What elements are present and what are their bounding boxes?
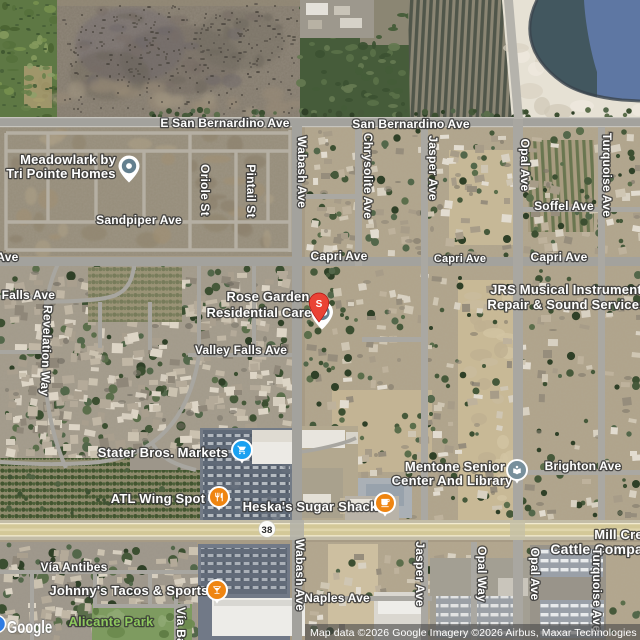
- svg-text:Meadowlark by: Meadowlark by: [20, 152, 116, 167]
- svg-text:Brighton Ave: Brighton Ave: [545, 459, 622, 473]
- svg-text:38: 38: [262, 525, 273, 536]
- svg-text:E San Bernardino Ave: E San Bernardino Ave: [160, 116, 289, 130]
- svg-text:Jasper Ave: Jasper Ave: [413, 541, 427, 606]
- svg-text:Mentone Senior: Mentone Senior: [405, 459, 505, 474]
- svg-text:Repair & Sound Services: Repair & Sound Services: [487, 297, 640, 312]
- svg-text:Johnny's Tacos & Sports: Johnny's Tacos & Sports: [49, 583, 208, 598]
- svg-text:Naples Ave: Naples Ave: [304, 591, 370, 605]
- svg-text:Turquoise Ave: Turquoise Ave: [590, 548, 604, 632]
- svg-text:Residential Care: Residential Care: [206, 305, 311, 320]
- svg-text:Google: Google: [7, 618, 52, 637]
- svg-text:Capri Ave: Capri Ave: [311, 249, 368, 263]
- svg-text:Alicante Park: Alicante Park: [69, 614, 155, 629]
- svg-text:Stater Bros. Markets: Stater Bros. Markets: [98, 445, 228, 460]
- svg-text:Capri Ave: Capri Ave: [531, 250, 588, 264]
- svg-text:Center And Library: Center And Library: [392, 473, 513, 488]
- svg-text:Mill Creek: Mill Creek: [594, 527, 640, 542]
- svg-text:Tri Pointe Homes: Tri Pointe Homes: [6, 166, 115, 181]
- svg-text:Map data ©2026 Google Imagery: Map data ©2026 Google Imagery ©2026 Airb…: [310, 627, 637, 639]
- svg-text:Vía Ba: Vía Ba: [174, 607, 188, 640]
- svg-text:Opal Ave: Opal Ave: [518, 139, 532, 192]
- svg-text:Soffel Ave: Soffel Ave: [534, 199, 594, 213]
- svg-text:San Bernardino Ave: San Bernardino Ave: [352, 117, 470, 131]
- svg-text:Turquoise Ave: Turquoise Ave: [600, 133, 614, 217]
- svg-text:ATL Wing Spot: ATL Wing Spot: [111, 491, 206, 506]
- svg-text:Wabash Ave: Wabash Ave: [295, 136, 309, 208]
- svg-text:Capri Ave: Capri Ave: [0, 250, 19, 264]
- svg-text:Sandpiper Ave: Sandpiper Ave: [96, 213, 182, 227]
- svg-text:Jasper Ave: Jasper Ave: [426, 135, 440, 200]
- svg-text:Pintail St: Pintail St: [244, 164, 258, 217]
- svg-text:JRS Musical Instrument: JRS Musical Instrument: [490, 282, 640, 297]
- svg-text:Wabash Ave: Wabash Ave: [293, 539, 307, 611]
- svg-text:Chrysolite Ave: Chrysolite Ave: [361, 133, 375, 219]
- svg-text:Opal Way: Opal Way: [475, 546, 489, 602]
- svg-text:Heska's Sugar Shack: Heska's Sugar Shack: [243, 499, 378, 514]
- svg-text:Vía Antibes: Vía Antibes: [40, 560, 107, 574]
- svg-text:Valley Falls Ave: Valley Falls Ave: [0, 288, 55, 302]
- svg-text:Opal Ave: Opal Ave: [528, 548, 542, 601]
- svg-text:Rose Garden: Rose Garden: [226, 289, 309, 304]
- svg-text:Valley Falls Ave: Valley Falls Ave: [195, 343, 287, 357]
- svg-text:S: S: [316, 299, 323, 310]
- svg-text:Oriole St: Oriole St: [198, 164, 212, 216]
- svg-text:Capri Ave: Capri Ave: [434, 253, 486, 265]
